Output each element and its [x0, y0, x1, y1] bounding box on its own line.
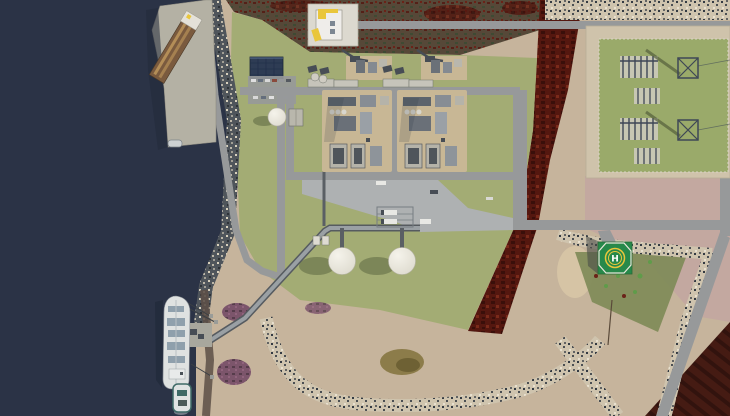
- plant-road-east: [513, 90, 527, 220]
- storage-tank-1: [329, 248, 356, 275]
- helipad-h-label: H: [611, 255, 619, 265]
- transformer-bay-2: [620, 118, 658, 140]
- substation: [586, 26, 730, 178]
- parking-lot: [248, 76, 296, 104]
- storage-tank-2: [389, 248, 416, 275]
- plant-road-south: [286, 172, 516, 180]
- switch-bay-2: [634, 148, 660, 164]
- helipad: H: [586, 236, 632, 274]
- riprap-strip-top: [545, 0, 730, 20]
- substation-lawn: [599, 39, 728, 172]
- small-boat: [168, 140, 182, 147]
- switch-bay-1: [634, 88, 660, 104]
- south-substation-road: [513, 220, 730, 230]
- tug-boat: [173, 384, 191, 412]
- transformer-bay-1: [620, 56, 658, 78]
- admin-pad: [308, 4, 358, 46]
- aerial-render: H: [0, 0, 730, 416]
